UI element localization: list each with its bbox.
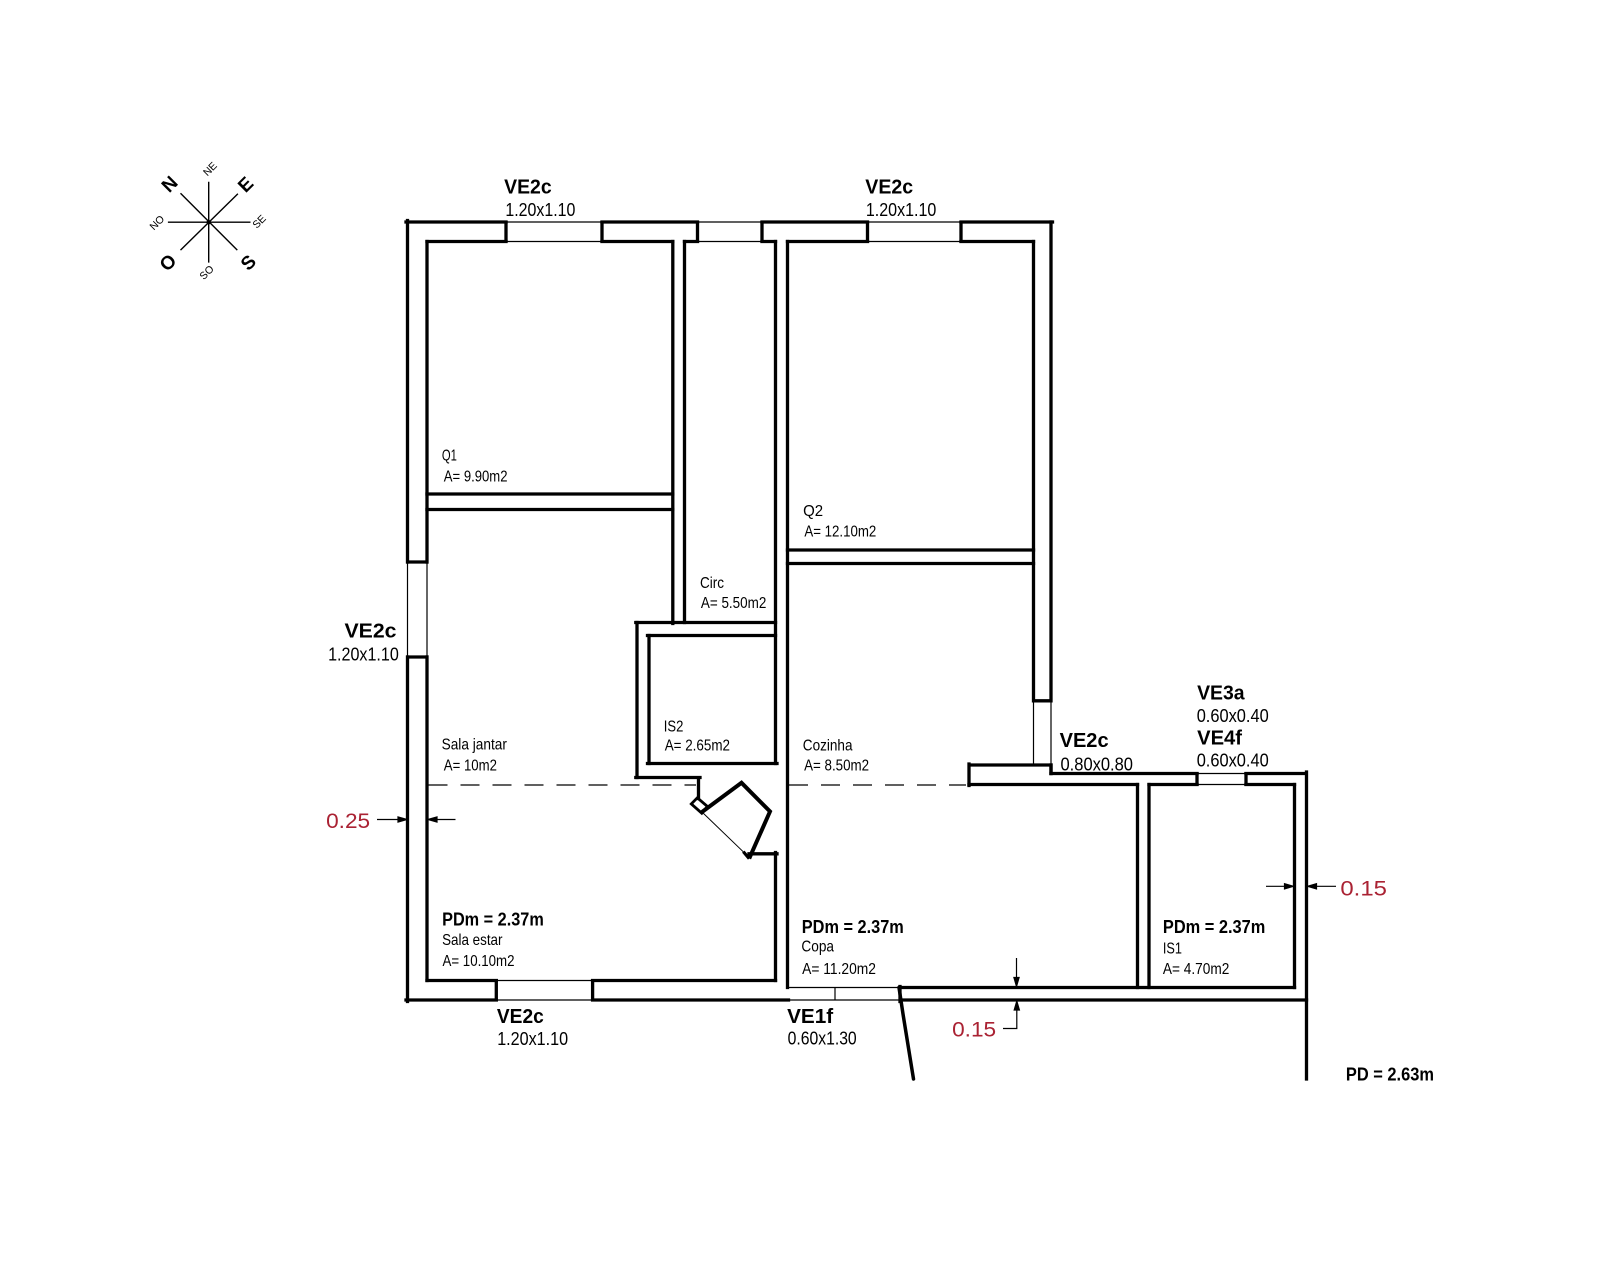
svg-text:0.15: 0.15: [952, 1018, 996, 1041]
svg-text:PD = 2.63m: PD = 2.63m: [1346, 1065, 1434, 1085]
svg-text:NE: NE: [201, 160, 220, 179]
svg-text:O: O: [156, 251, 181, 276]
svg-text:SO: SO: [197, 263, 216, 282]
svg-text:A= 5.50m2: A= 5.50m2: [701, 595, 766, 612]
svg-text:SE: SE: [250, 213, 268, 231]
svg-text:VE2c: VE2c: [504, 177, 552, 199]
svg-text:0.60x1.30: 0.60x1.30: [788, 1029, 857, 1049]
svg-text:Copa: Copa: [801, 939, 834, 956]
svg-text:VE2c: VE2c: [865, 177, 913, 199]
svg-text:IS1: IS1: [1163, 941, 1182, 958]
svg-text:N: N: [158, 172, 183, 197]
svg-text:A= 2.65m2: A= 2.65m2: [665, 738, 730, 755]
svg-text:VE2c: VE2c: [345, 621, 397, 643]
svg-text:IS2: IS2: [664, 719, 684, 736]
svg-text:1.20x1.10: 1.20x1.10: [497, 1029, 568, 1049]
svg-text:Sala jantar: Sala jantar: [442, 737, 508, 754]
svg-text:1.20x1.10: 1.20x1.10: [505, 200, 575, 220]
svg-text:0.60x0.40: 0.60x0.40: [1197, 706, 1269, 726]
svg-text:PDm = 2.37m: PDm = 2.37m: [442, 909, 544, 929]
svg-text:PDm = 2.37m: PDm = 2.37m: [802, 917, 904, 937]
svg-text:Circ: Circ: [700, 575, 724, 592]
svg-text:A= 8.50m2: A= 8.50m2: [804, 758, 869, 775]
svg-text:0.60x0.40: 0.60x0.40: [1197, 751, 1269, 771]
svg-text:Q2: Q2: [803, 503, 823, 520]
svg-text:VE2c: VE2c: [497, 1006, 544, 1028]
svg-text:Sala estar: Sala estar: [442, 932, 503, 949]
svg-text:A= 4.70m2: A= 4.70m2: [1163, 961, 1229, 978]
svg-text:A= 10m2: A= 10m2: [444, 757, 497, 774]
svg-text:1.20x1.10: 1.20x1.10: [328, 645, 399, 665]
svg-text:1.20x1.10: 1.20x1.10: [866, 200, 936, 220]
svg-text:VE4f: VE4f: [1197, 728, 1242, 750]
svg-text:NO: NO: [148, 213, 168, 233]
svg-text:VE3a: VE3a: [1197, 682, 1245, 704]
svg-text:A= 12.10m2: A= 12.10m2: [804, 523, 876, 540]
svg-text:S: S: [237, 251, 261, 275]
svg-text:0.80x0.80: 0.80x0.80: [1061, 755, 1134, 775]
svg-text:VE2c: VE2c: [1060, 730, 1109, 752]
svg-text:VE1f: VE1f: [787, 1006, 833, 1028]
svg-text:0.15: 0.15: [1340, 877, 1387, 900]
svg-text:Cozinha: Cozinha: [803, 737, 853, 754]
svg-text:A= 9.90m2: A= 9.90m2: [444, 468, 508, 485]
svg-text:A= 10.10m2: A= 10.10m2: [443, 953, 515, 970]
svg-text:A= 11.20m2: A= 11.20m2: [802, 961, 876, 978]
svg-text:Q1: Q1: [442, 447, 457, 464]
svg-text:E: E: [234, 173, 258, 197]
svg-text:0.25: 0.25: [326, 810, 370, 833]
svg-text:PDm = 2.37m: PDm = 2.37m: [1163, 917, 1265, 937]
